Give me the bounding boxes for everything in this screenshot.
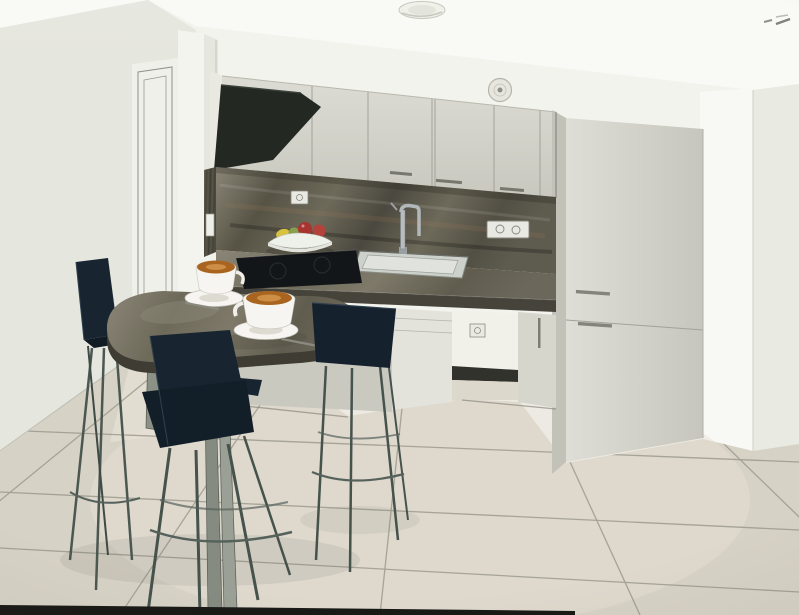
- backsplash-return-shade: [204, 167, 216, 257]
- round-wall-vent: [489, 79, 512, 102]
- right-wall: [753, 83, 799, 452]
- fruit-highlight: [302, 225, 305, 228]
- light-switch: [206, 214, 214, 236]
- tall-cabinet-front: [566, 118, 703, 462]
- tall-cabinet-column: [552, 110, 703, 474]
- power-outlet-single: [291, 191, 308, 204]
- niche-floor: [452, 380, 518, 400]
- under-counter-niche: [452, 310, 518, 370]
- base-cabinet-handle: [538, 318, 541, 348]
- bright-wall-strip: [700, 88, 753, 458]
- coffee-far-cream: [206, 264, 226, 270]
- power-outlet-double: [487, 221, 529, 238]
- saucer-far-inner: [199, 294, 229, 302]
- rendered-scene: [0, 0, 799, 615]
- stool-right-seatback: [312, 303, 396, 368]
- ceiling-spotlight: [399, 2, 445, 19]
- niche-outlet: [470, 324, 485, 337]
- kitchen-rendering-photo: [0, 0, 799, 615]
- coffee-near-cream: [257, 295, 281, 302]
- appliance-front: [392, 308, 452, 410]
- base-cabinet-right: [518, 312, 556, 408]
